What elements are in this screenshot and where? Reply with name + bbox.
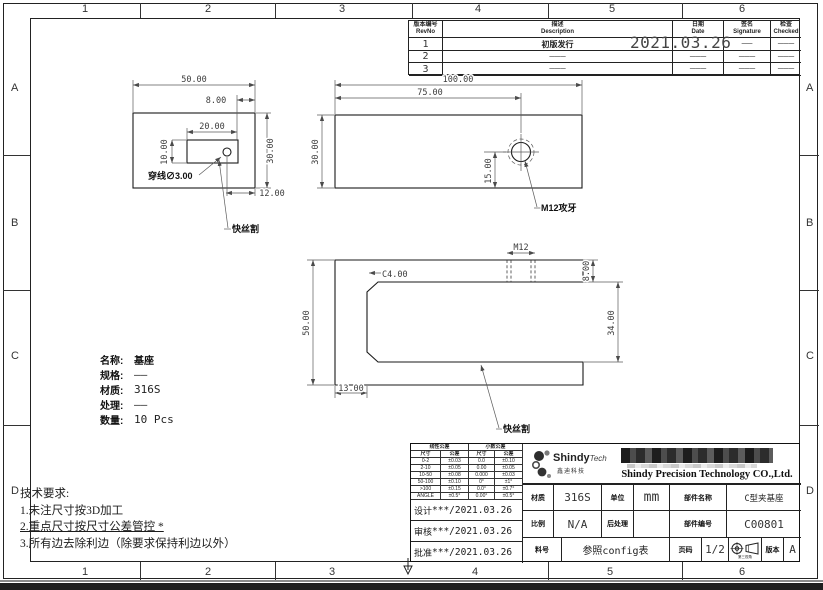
tol-cell: 0.000: [469, 472, 495, 479]
tol-group-1: 线性公差: [411, 444, 469, 451]
scale-label: 比例: [531, 519, 545, 529]
part-info-material-value: 316S: [134, 383, 161, 396]
tol-cell: ANGLE: [411, 493, 441, 500]
view2-top: 100.00 75.00 30.00 15.00 M12攻牙: [311, 75, 582, 213]
tol-cell: 0.0°: [469, 486, 495, 493]
dim-50-side: 50.00: [302, 310, 312, 336]
tol-cell: 0.00: [469, 465, 495, 472]
page-value: 1/2: [705, 543, 725, 556]
part-info-qty-value: 10 Pcs: [134, 413, 174, 426]
tol-cell: ±0.15: [441, 486, 469, 493]
projection-caption: 第三视角: [738, 556, 752, 560]
third-angle-projection-icon: [730, 541, 760, 556]
tech-req-title: 技术要求:: [20, 486, 236, 503]
redacted-text-block-2: [627, 464, 757, 468]
unit-value: mm: [644, 490, 660, 505]
stock-value: 参照config表: [582, 542, 648, 557]
tech-req-item-3: 3.所有边去除利边（除要求保持利边以外）: [20, 536, 236, 553]
signoff-approve: 批准 ***/2021.03.26: [411, 542, 522, 563]
shindy-logo-icon: [529, 449, 553, 479]
dim-10: 10.00: [160, 139, 170, 165]
tol-cell: 0-2: [411, 458, 441, 465]
title-row-stock: 料号 参照config表 页码 1/2 第三视角 版本 A: [523, 537, 801, 562]
tech-req-item-1: 1.未注尺寸按3D加工: [20, 503, 236, 520]
dim-13: 13.00: [338, 384, 364, 394]
dim-8-side: 8.00: [582, 261, 592, 281]
signoff-approve-label: 批准: [414, 546, 432, 559]
tol-cell: 2-10: [411, 465, 441, 472]
dim-30: 30.00: [266, 138, 276, 164]
title-row-material: 材质 316S 单位 mm 部件名称 C型夹基座: [523, 484, 801, 510]
brand-name-suffix: Tech: [590, 454, 607, 463]
title-block: 线性公差 小数公差 尺寸 公差 尺寸 公差 0-2 ±0.03 0.0 ±0.1…: [410, 443, 800, 562]
dim-75: 75.00: [417, 88, 443, 98]
tol-cell: ±0.10: [495, 458, 523, 465]
label-wirecut-view1: 快丝割: [232, 223, 259, 234]
dim-c4: C4.00: [382, 270, 408, 280]
part-info-qty: 数量: 10 Pcs: [100, 412, 174, 427]
title-row-scale: 比例 N/A 后处理 部件编号 C00801: [523, 510, 801, 537]
tol-cell: ±0.05: [495, 465, 523, 472]
stock-label: 料号: [535, 545, 549, 555]
part-info-spec: 规格: ——: [100, 367, 174, 382]
version-value: A: [789, 543, 796, 556]
tol-sub-4: 公差: [495, 451, 523, 458]
part-info-qty-label: 数量:: [100, 412, 134, 427]
tol-cell: ±0.05: [441, 465, 469, 472]
redacted-text-block: [621, 448, 773, 463]
tol-cell: 0.0: [469, 458, 495, 465]
view3-side: M12 8.00 34.00 50.00 13.00 C4.00 快丝割: [302, 243, 623, 434]
part-info-treatment-label: 处理:: [100, 397, 134, 412]
dim-100: 100.00: [443, 75, 474, 85]
signoff-review-value: ***/2021.03.26: [432, 526, 512, 537]
dim-20: 20.00: [199, 122, 225, 132]
dim-34: 34.00: [607, 310, 617, 336]
label-wirecut-view3: 快丝割: [503, 423, 530, 434]
material-label: 材质: [531, 493, 545, 503]
post-process-label: 后处理: [607, 519, 628, 529]
signoff-design-label: 设计: [414, 504, 432, 517]
part-no-label: 部件编号: [684, 519, 712, 529]
part-info-treatment-value: ——: [134, 398, 147, 411]
part-name-label: 部件名称: [684, 493, 712, 503]
part-name-value: C型夹基座: [744, 492, 783, 504]
scale-value: N/A: [568, 518, 588, 531]
tol-cell: >100: [411, 486, 441, 493]
tol-sub-1: 尺寸: [411, 451, 441, 458]
page-label: 页码: [679, 545, 693, 555]
signoff-design-value: ***/2021.03.26: [432, 505, 512, 516]
brand-name: ShindyTech: [553, 452, 607, 464]
signoff-approve-value: ***/2021.03.26: [432, 547, 512, 558]
dim-30-top: 30.00: [311, 139, 321, 165]
label-wire-hole: 穿线∅3.00: [148, 170, 193, 181]
projection-cell: 第三视角: [728, 538, 761, 562]
label-m12-tap: M12攻牙: [541, 202, 577, 213]
signoff-review-label: 审核: [414, 525, 432, 538]
company-name: Shindy Precision Technology CO.,Ltd.: [613, 469, 801, 480]
part-info-material-label: 材质:: [100, 382, 134, 397]
part-info-spec-value: ——: [134, 368, 147, 381]
tol-cell: 50-100: [411, 479, 441, 486]
tech-req-item-2: 2.重点尺寸按尺寸公差管控 *: [20, 519, 236, 536]
signoff-review: 审核 ***/2021.03.26: [411, 521, 522, 542]
tol-cell: 0°: [469, 479, 495, 486]
part-info-block: 名称: 基座 规格: —— 材质: 316S 处理: —— 数量: 10 Pcs: [100, 352, 174, 427]
dim-8: 8.00: [206, 96, 226, 106]
signoff-block: 设计 ***/2021.03.26 审核 ***/2021.03.26 批准 *…: [411, 500, 523, 563]
view1-front: 50.00 8.00 20.00 10.00 30.00 12.00 穿线∅3.…: [133, 75, 285, 234]
drawing-sheet: 1 2 3 4 5 6 1 2 3 4 5 6 A B C D A B C D …: [0, 0, 823, 590]
part-no-value: C00801: [744, 518, 784, 531]
company-header-cell: ShindyTech 鑫迪科技 Shindy Precision Technol…: [523, 444, 801, 484]
part-info-spec-label: 规格:: [100, 367, 134, 382]
brand-name-main: Shindy: [553, 452, 590, 464]
unit-label: 单位: [611, 493, 625, 503]
tol-cell: ±0.08: [441, 472, 469, 479]
dim-12: 12.00: [259, 189, 285, 199]
tech-requirements: 技术要求: 1.未注尺寸按3D加工 2.重点尺寸按尺寸公差管控 * 3.所有边去…: [20, 486, 236, 552]
signoff-design: 设计 ***/2021.03.26: [411, 500, 522, 521]
tol-cell: ±0.7°: [495, 486, 523, 493]
part-info-treatment: 处理: ——: [100, 397, 174, 412]
version-label: 版本: [766, 545, 780, 555]
tol-cell: ±0.10: [441, 479, 469, 486]
brand-name-cn: 鑫迪科技: [557, 466, 585, 475]
tol-cell: ±0.5°: [441, 493, 469, 500]
dim-m12: M12: [513, 243, 528, 253]
tol-group-2: 小数公差: [469, 444, 523, 451]
dim-width-50: 50.00: [181, 75, 207, 85]
part-info-name-value: 基座: [134, 352, 168, 367]
part-info-material: 材质: 316S: [100, 382, 174, 397]
tol-cell: 0.00°: [469, 493, 495, 500]
tol-sub-2: 公差: [441, 451, 469, 458]
dim-15: 15.00: [484, 158, 494, 184]
tol-cell: ±1°: [495, 479, 523, 486]
tolerance-table: 线性公差 小数公差 尺寸 公差 尺寸 公差 0-2 ±0.03 0.0 ±0.1…: [411, 444, 523, 500]
tol-cell: ±0.5°: [495, 493, 523, 500]
tol-cell: 10-50: [411, 472, 441, 479]
tol-sub-3: 尺寸: [469, 451, 495, 458]
tol-cell: ±0.03: [495, 472, 523, 479]
material-value: 316S: [564, 491, 591, 504]
tol-cell: ±0.03: [441, 458, 469, 465]
part-info-name: 名称: 基座: [100, 352, 174, 367]
part-info-name-label: 名称:: [100, 352, 134, 367]
